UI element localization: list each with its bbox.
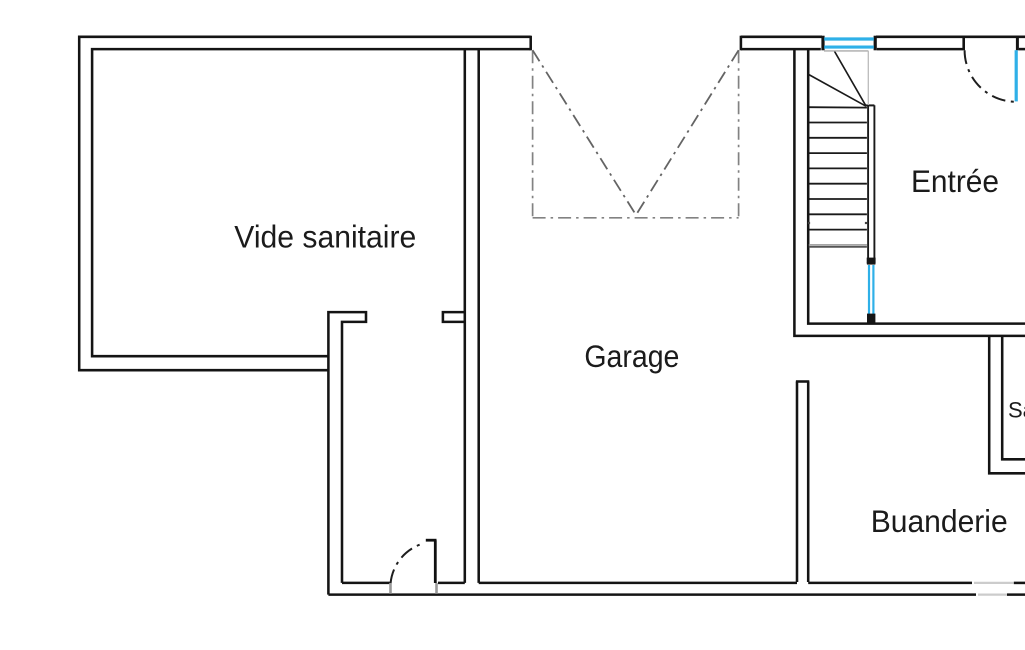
svg-text:Salle d'eau: Salle d'eau	[1008, 398, 1025, 423]
svg-text:Entrée: Entrée	[911, 163, 999, 199]
svg-text:Buanderie: Buanderie	[871, 503, 1008, 539]
svg-text:Vide sanitaire: Vide sanitaire	[234, 219, 416, 255]
svg-text:Garage: Garage	[584, 338, 679, 374]
